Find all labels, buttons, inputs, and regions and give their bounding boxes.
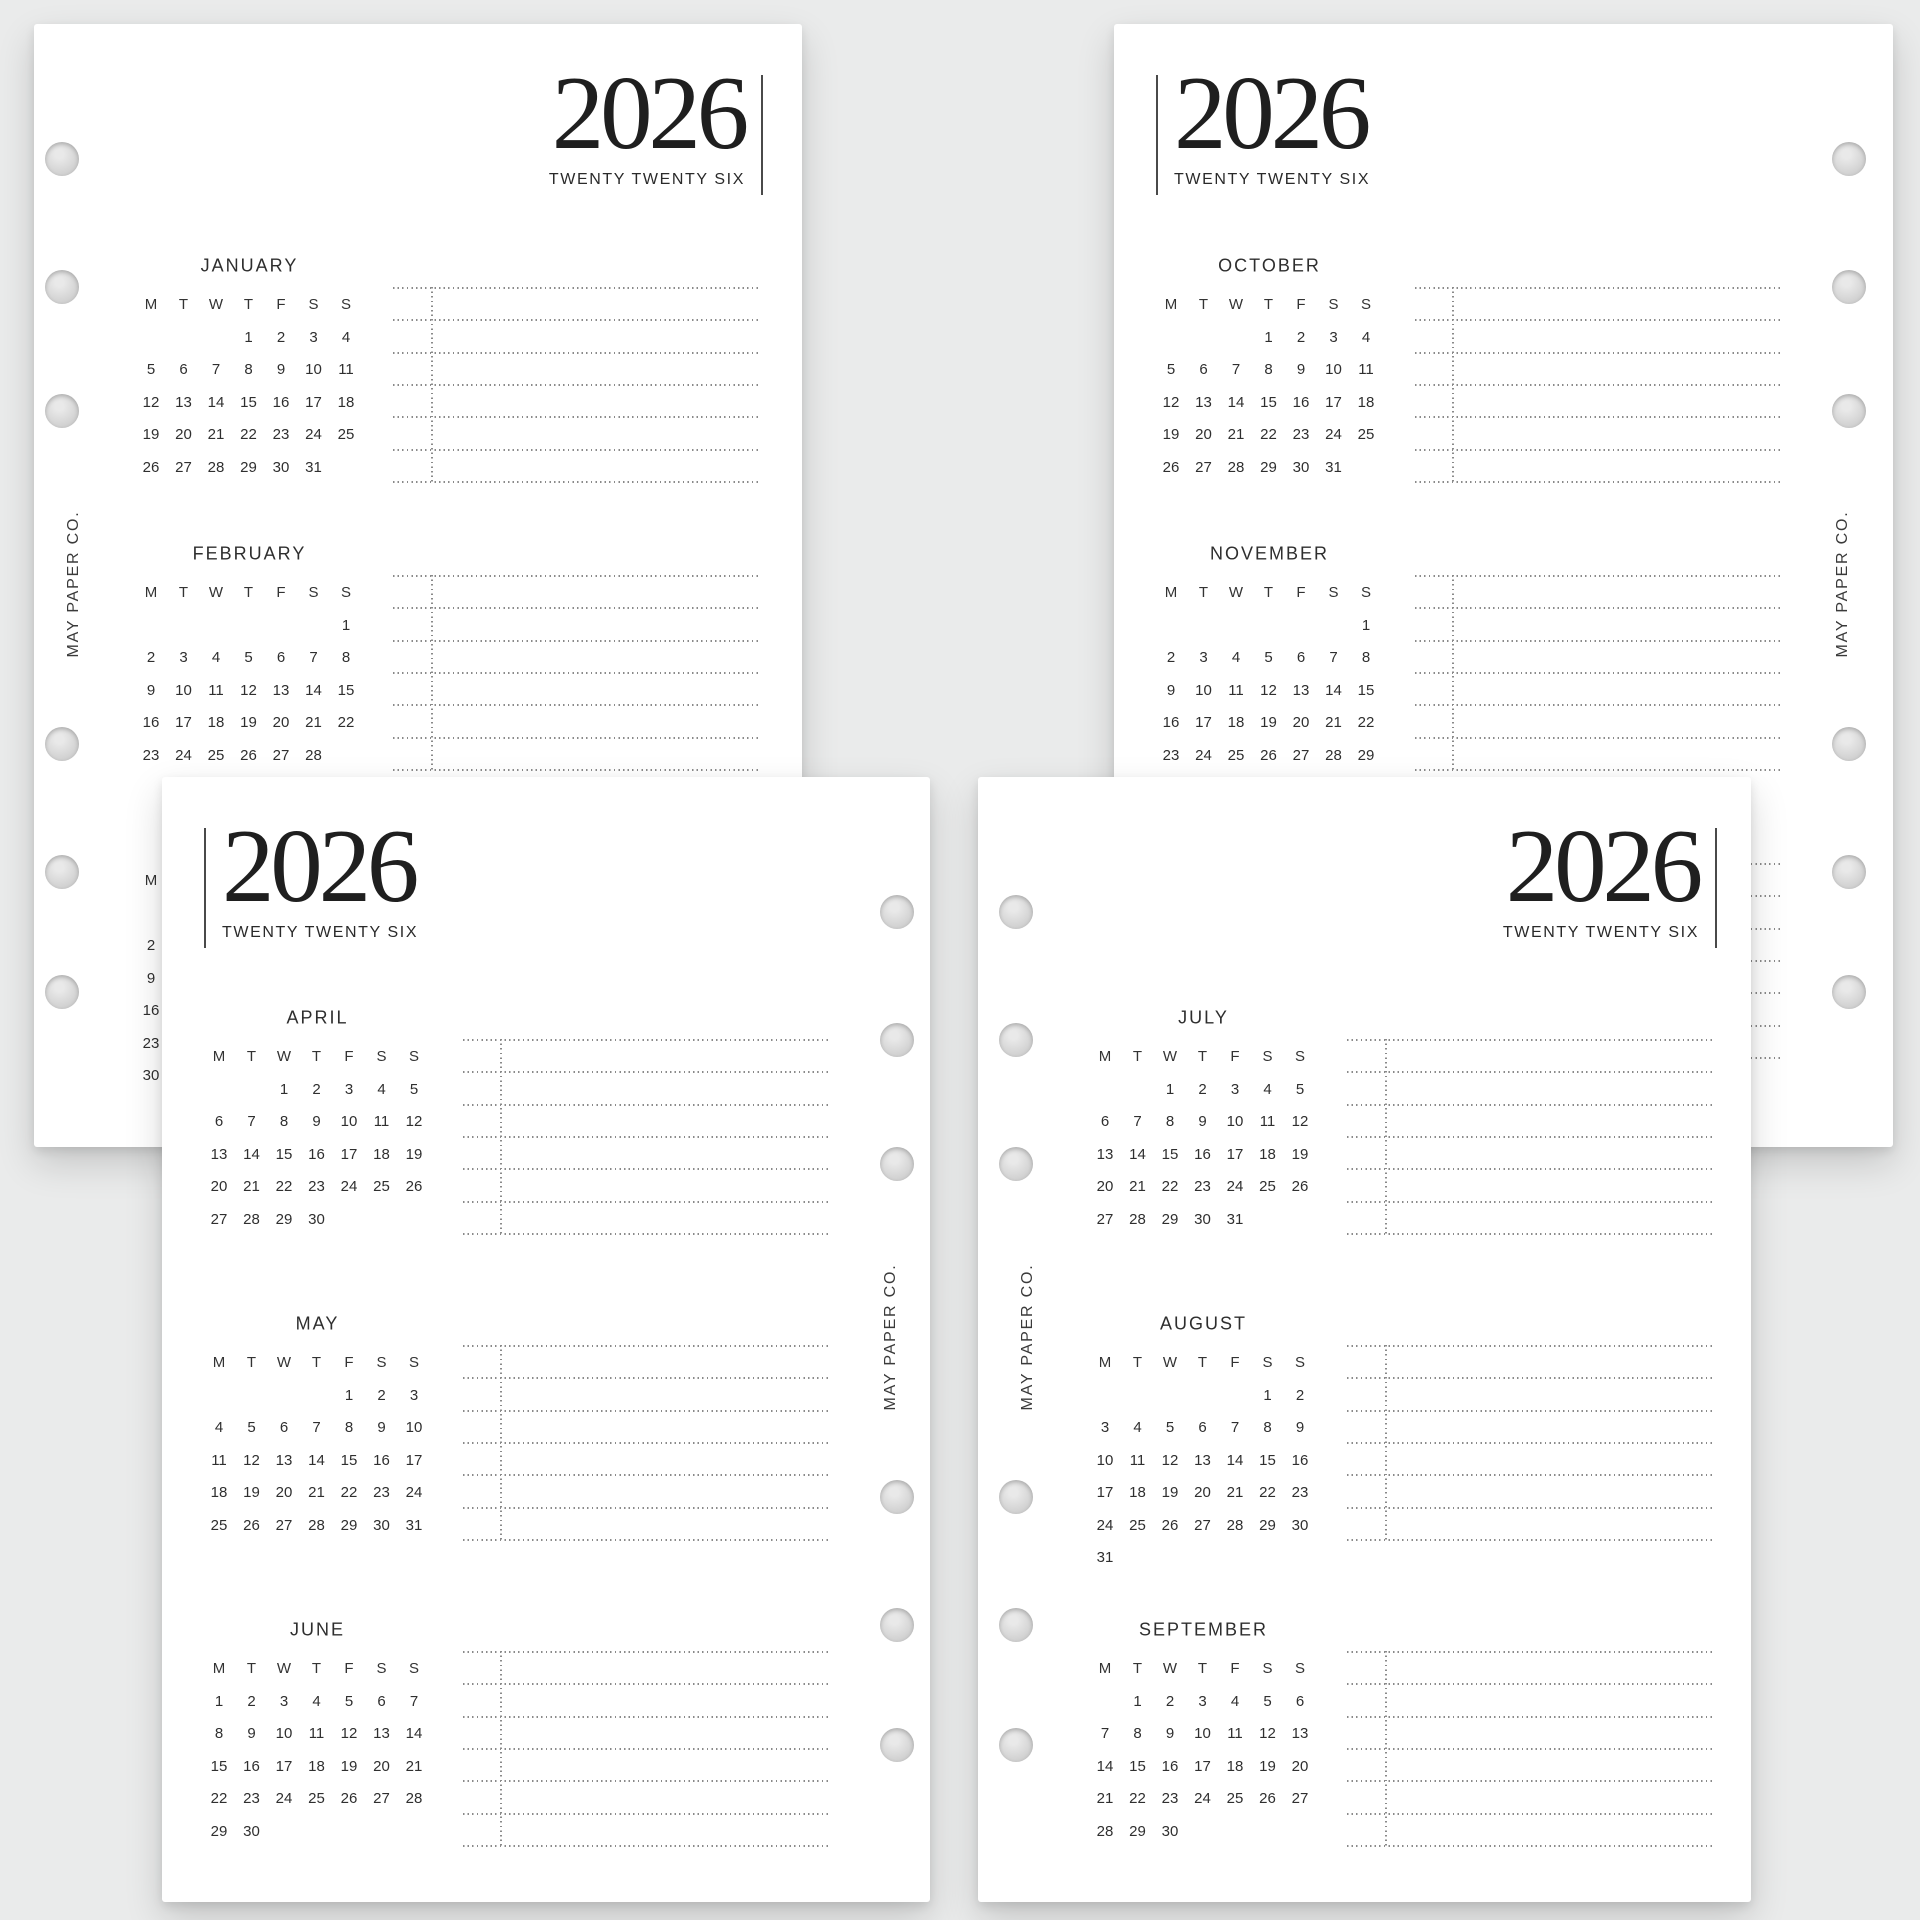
- weekday-letter: T: [235, 1046, 268, 1068]
- date-cell: [235, 1079, 268, 1101]
- weekday-letter: W: [268, 1352, 301, 1374]
- weekday-letter: S: [1284, 1046, 1317, 1068]
- notes-line: [463, 1377, 828, 1379]
- weekday-letter: W: [1154, 1046, 1187, 1068]
- date-cell: 15: [268, 1144, 301, 1166]
- binder-hole: [999, 1023, 1033, 1057]
- date-cell: 31: [1317, 457, 1350, 479]
- date-cell: 4: [330, 327, 363, 349]
- notes-line: [1347, 1201, 1714, 1203]
- weekday-letter: T: [235, 1658, 268, 1680]
- binder-hole: [1832, 975, 1866, 1009]
- date-week-row: 13141516171819: [1089, 1144, 1317, 1166]
- date-cell: 29: [1251, 1515, 1284, 1537]
- weekday-letter: T: [167, 582, 200, 604]
- date-cell: 10: [1089, 1450, 1122, 1472]
- date-cell: 1: [268, 1079, 301, 1101]
- date-cell: 24: [297, 424, 330, 446]
- date-cell: 24: [398, 1482, 431, 1504]
- date-cell: 30: [365, 1515, 398, 1537]
- year-title: 2026: [1506, 813, 1699, 918]
- date-cell: 21: [1089, 1788, 1122, 1810]
- date-cell: 29: [1121, 1821, 1154, 1843]
- date-week-row: 31: [1089, 1547, 1317, 1569]
- date-cell: 3: [398, 1385, 431, 1407]
- date-cell: 5: [398, 1079, 431, 1101]
- date-cell: 8: [1350, 647, 1383, 669]
- date-cell: 24: [333, 1176, 366, 1198]
- weekday-header: MTWTFSS: [1089, 1352, 1317, 1374]
- date-cell: [167, 327, 200, 349]
- month-label: JULY: [1176, 1008, 1229, 1029]
- binder-hole: [880, 895, 914, 929]
- date-cell: 15: [1121, 1756, 1154, 1778]
- notes-line: [1347, 1168, 1714, 1170]
- date-cell: 1: [330, 615, 363, 637]
- date-cell: 10: [1187, 680, 1220, 702]
- date-cell: 6: [268, 1417, 301, 1439]
- date-cell: 29: [203, 1821, 236, 1843]
- date-cell: 23: [235, 1788, 268, 1810]
- date-cell: 11: [330, 359, 363, 381]
- weekday-letter: T: [232, 294, 265, 316]
- date-cell: [232, 615, 265, 637]
- notes-line: [1415, 352, 1780, 354]
- date-cell: 18: [200, 712, 233, 734]
- weekday-letter: W: [268, 1658, 301, 1680]
- date-cell: [268, 1385, 301, 1407]
- date-week-row: 9101112131415: [1155, 680, 1383, 702]
- date-cell: 9: [1154, 1723, 1187, 1745]
- date-cell: 16: [235, 1756, 268, 1778]
- date-week-row: 1: [135, 615, 363, 637]
- date-week-row: 891011121314: [203, 1723, 431, 1745]
- date-cell: 3: [1219, 1079, 1252, 1101]
- date-cell: [333, 1821, 366, 1843]
- date-cell: [1187, 327, 1220, 349]
- date-cell: 23: [265, 424, 298, 446]
- notes-line: [463, 1474, 828, 1476]
- date-cell: 15: [1252, 392, 1285, 414]
- weekday-letter: S: [1251, 1046, 1284, 1068]
- date-cell: 21: [235, 1176, 268, 1198]
- date-cell: 3: [297, 327, 330, 349]
- date-cell: 2: [265, 327, 298, 349]
- notes-column-divider: [431, 287, 433, 483]
- weekday-header: MTWTFSS: [1089, 1658, 1317, 1680]
- weekday-letter: W: [1220, 294, 1253, 316]
- weekday-letter: T: [300, 1046, 333, 1068]
- date-cell: 19: [1252, 712, 1285, 734]
- date-cell: 8: [1252, 359, 1285, 381]
- date-cell: 5: [1154, 1417, 1187, 1439]
- date-cell: [235, 1385, 268, 1407]
- date-week-row: 123456: [1089, 1691, 1317, 1713]
- notes-line: [1415, 704, 1780, 706]
- year-divider-line: [761, 75, 763, 195]
- date-week-row: 27282930: [203, 1209, 431, 1231]
- date-week-row: 2728293031: [1089, 1209, 1317, 1231]
- date-cell: 11: [365, 1111, 398, 1133]
- weekday-letter: F: [333, 1658, 366, 1680]
- date-cell: 2: [1284, 1385, 1317, 1407]
- date-cell: 1: [333, 1385, 366, 1407]
- year-divider-line: [1156, 75, 1158, 195]
- date-cell: 1: [1251, 1385, 1284, 1407]
- binder-hole: [45, 142, 79, 176]
- date-cell: 15: [330, 680, 363, 702]
- date-cell: 26: [232, 745, 265, 767]
- date-cell: 21: [297, 712, 330, 734]
- date-cell: 19: [1154, 1482, 1187, 1504]
- notes-line: [463, 1539, 828, 1541]
- date-cell: [1186, 1821, 1219, 1843]
- date-cell: 7: [1317, 647, 1350, 669]
- notes-column-divider: [1385, 1651, 1387, 1847]
- date-cell: 14: [200, 392, 233, 414]
- weekday-letter: M: [1155, 294, 1188, 316]
- date-week-row: 262728293031: [135, 457, 363, 479]
- date-cell: 26: [1155, 457, 1188, 479]
- planner-mockup-canvas: 2026TWENTY TWENTY SIXMAY PAPER CO.JANUAR…: [0, 0, 1920, 1920]
- date-cell: 2: [1154, 1691, 1187, 1713]
- date-cell: [1089, 1691, 1122, 1713]
- date-cell: 6: [1285, 647, 1318, 669]
- binder-hole: [880, 1728, 914, 1762]
- date-cell: 15: [1154, 1144, 1187, 1166]
- date-cell: 29: [1154, 1209, 1187, 1231]
- date-cell: 8: [330, 647, 363, 669]
- date-week-row: 14151617181920: [1089, 1756, 1317, 1778]
- date-cell: 22: [330, 712, 363, 734]
- date-cell: 18: [203, 1482, 236, 1504]
- date-cell: 25: [1121, 1515, 1154, 1537]
- date-cell: [1317, 615, 1350, 637]
- date-cell: [1089, 1079, 1122, 1101]
- date-cell: [1154, 1547, 1187, 1569]
- date-cell: 18: [1121, 1482, 1154, 1504]
- weekday-letter: F: [1219, 1352, 1252, 1374]
- date-cell: 21: [398, 1756, 431, 1778]
- date-cell: 24: [1317, 424, 1350, 446]
- weekday-letter: M: [1089, 1658, 1122, 1680]
- weekday-letter: S: [330, 294, 363, 316]
- date-week-row: 282930: [1089, 1821, 1317, 1843]
- date-cell: 24: [1089, 1515, 1122, 1537]
- weekday-letter: W: [1154, 1352, 1187, 1374]
- date-week-row: 3456789: [1089, 1417, 1317, 1439]
- date-week-row: 2345678: [135, 647, 363, 669]
- date-cell: 16: [135, 712, 168, 734]
- date-week-row: 567891011: [135, 359, 363, 381]
- date-cell: 21: [1317, 712, 1350, 734]
- date-cell: 7: [398, 1691, 431, 1713]
- notes-column-divider: [1452, 575, 1454, 771]
- date-cell: 3: [268, 1691, 301, 1713]
- date-cell: [1284, 1547, 1317, 1569]
- date-cell: 9: [365, 1417, 398, 1439]
- date-week-row: 123: [203, 1385, 431, 1407]
- date-cell: 22: [333, 1482, 366, 1504]
- date-cell: [1219, 1385, 1252, 1407]
- date-cell: 25: [1220, 745, 1253, 767]
- weekday-header: MTWTFSS: [1089, 1046, 1317, 1068]
- date-cell: 28: [1219, 1515, 1252, 1537]
- weekday-letter: M: [135, 294, 168, 316]
- date-cell: 13: [1284, 1723, 1317, 1745]
- date-cell: 16: [1154, 1756, 1187, 1778]
- date-week-row: 567891011: [1155, 359, 1383, 381]
- weekday-letter: S: [1350, 582, 1383, 604]
- date-cell: 23: [135, 745, 168, 767]
- date-week-row: 6789101112: [203, 1111, 431, 1133]
- page-bottom-right: 2026TWENTY TWENTY SIXMAY PAPER CO.JULYMT…: [978, 777, 1751, 1902]
- date-week-row: 9101112131415: [135, 680, 363, 702]
- date-cell: 18: [1219, 1756, 1252, 1778]
- date-cell: 31: [1219, 1209, 1252, 1231]
- weekday-letter: M: [135, 582, 168, 604]
- date-cell: 24: [1219, 1176, 1252, 1198]
- date-week-row: 232425262728: [135, 745, 363, 767]
- date-cell: [1187, 615, 1220, 637]
- notes-line: [463, 1039, 828, 1041]
- notes-line: [463, 1442, 828, 1444]
- binder-hole: [999, 1480, 1033, 1514]
- notes-line: [1347, 1345, 1714, 1347]
- date-cell: 14: [1121, 1144, 1154, 1166]
- date-cell: [1186, 1385, 1219, 1407]
- date-cell: 26: [1284, 1176, 1317, 1198]
- notes-line: [463, 1780, 828, 1782]
- date-cell: 4: [1219, 1691, 1252, 1713]
- date-cell: 21: [300, 1482, 333, 1504]
- date-week-row: 2930: [203, 1821, 431, 1843]
- date-cell: 25: [1251, 1176, 1284, 1198]
- date-cell: 26: [1252, 745, 1285, 767]
- notes-line: [1347, 1071, 1714, 1073]
- date-cell: 20: [1187, 424, 1220, 446]
- binder-hole: [999, 1728, 1033, 1762]
- notes-line: [1415, 287, 1780, 289]
- notes-column-divider: [1452, 287, 1454, 483]
- date-week-row: 19202122232425: [1155, 424, 1383, 446]
- notes-line: [463, 1716, 828, 1718]
- weekday-letter: W: [1154, 1658, 1187, 1680]
- date-cell: 10: [1186, 1723, 1219, 1745]
- weekday-letter: F: [265, 582, 298, 604]
- date-cell: 10: [333, 1111, 366, 1133]
- notes-line: [463, 1813, 828, 1815]
- date-cell: 27: [268, 1515, 301, 1537]
- date-cell: 13: [265, 680, 298, 702]
- date-cell: 24: [167, 745, 200, 767]
- weekday-letter: T: [1187, 582, 1220, 604]
- weekday-letter: T: [232, 582, 265, 604]
- date-cell: 28: [297, 745, 330, 767]
- date-cell: 18: [1251, 1144, 1284, 1166]
- date-cell: 5: [1251, 1691, 1284, 1713]
- notes-line: [393, 607, 760, 609]
- date-cell: 17: [167, 712, 200, 734]
- date-cell: 8: [333, 1417, 366, 1439]
- date-cell: 4: [203, 1417, 236, 1439]
- date-cell: 7: [300, 1417, 333, 1439]
- weekday-letter: M: [1155, 582, 1188, 604]
- date-cell: 11: [1251, 1111, 1284, 1133]
- date-cell: 25: [300, 1788, 333, 1810]
- notes-line: [1415, 575, 1780, 577]
- date-cell: 12: [232, 680, 265, 702]
- binder-hole: [999, 895, 1033, 929]
- weekday-letter: W: [200, 582, 233, 604]
- weekday-letter: S: [365, 1046, 398, 1068]
- date-cell: 11: [1220, 680, 1253, 702]
- year-subtitle: TWENTY TWENTY SIX: [222, 925, 418, 941]
- notes-line: [393, 640, 760, 642]
- date-cell: 13: [1186, 1450, 1219, 1472]
- date-week-row: 12: [1089, 1385, 1317, 1407]
- date-week-row: 20212223242526: [1089, 1176, 1317, 1198]
- notes-line: [1347, 1410, 1714, 1412]
- date-cell: 9: [235, 1723, 268, 1745]
- date-cell: 27: [1186, 1515, 1219, 1537]
- date-cell: 17: [1219, 1144, 1252, 1166]
- date-cell: 23: [1155, 745, 1188, 767]
- date-cell: 3: [333, 1079, 366, 1101]
- notes-line: [393, 416, 760, 418]
- date-cell: 20: [268, 1482, 301, 1504]
- date-cell: 17: [268, 1756, 301, 1778]
- date-cell: 21: [200, 424, 233, 446]
- year-title: 2026: [1174, 60, 1367, 165]
- date-cell: 8: [1154, 1111, 1187, 1133]
- date-cell: 5: [1252, 647, 1285, 669]
- binder-hole: [45, 727, 79, 761]
- notes-line: [1347, 1039, 1714, 1041]
- date-cell: 8: [203, 1723, 236, 1745]
- date-cell: 1: [1252, 327, 1285, 349]
- date-week-row: 24252627282930: [1089, 1515, 1317, 1537]
- date-cell: 18: [300, 1756, 333, 1778]
- date-cell: 3: [1186, 1691, 1219, 1713]
- date-week-row: 2345678: [1155, 647, 1383, 669]
- weekday-letter: S: [1251, 1352, 1284, 1374]
- date-cell: [203, 1385, 236, 1407]
- date-cell: 9: [1284, 1417, 1317, 1439]
- date-cell: 20: [1285, 712, 1318, 734]
- date-cell: 12: [333, 1723, 366, 1745]
- weekday-letter: T: [1121, 1658, 1154, 1680]
- binder-hole: [45, 270, 79, 304]
- weekday-letter: F: [333, 1352, 366, 1374]
- date-cell: 14: [1220, 392, 1253, 414]
- notes-column-divider: [1385, 1345, 1387, 1541]
- notes-line: [463, 1651, 828, 1653]
- date-cell: 9: [1186, 1111, 1219, 1133]
- date-cell: 22: [232, 424, 265, 446]
- notes-line: [463, 1845, 828, 1847]
- date-cell: 1: [1121, 1691, 1154, 1713]
- date-week-row: 78910111213: [1089, 1723, 1317, 1745]
- date-cell: 6: [265, 647, 298, 669]
- year-subtitle: TWENTY TWENTY SIX: [1503, 925, 1699, 941]
- date-cell: 7: [235, 1111, 268, 1133]
- date-cell: [1284, 1209, 1317, 1231]
- date-cell: 22: [1350, 712, 1383, 734]
- date-cell: 9: [135, 680, 168, 702]
- date-week-row: 18192021222324: [203, 1482, 431, 1504]
- date-cell: 25: [365, 1176, 398, 1198]
- date-cell: 20: [203, 1176, 236, 1198]
- date-cell: 1: [232, 327, 265, 349]
- date-cell: [200, 327, 233, 349]
- binder-hole: [1832, 727, 1866, 761]
- date-cell: 13: [268, 1450, 301, 1472]
- notes-line: [463, 1507, 828, 1509]
- date-cell: 22: [1154, 1176, 1187, 1198]
- date-cell: 28: [1317, 745, 1350, 767]
- month-label: MAY: [294, 1314, 340, 1335]
- date-cell: [135, 615, 168, 637]
- date-cell: 24: [1186, 1788, 1219, 1810]
- date-week-row: 17181920212223: [1089, 1482, 1317, 1504]
- weekday-letter: F: [333, 1046, 366, 1068]
- date-cell: 18: [330, 392, 363, 414]
- date-cell: 1: [1350, 615, 1383, 637]
- weekday-letter: S: [297, 582, 330, 604]
- weekday-letter: S: [1317, 294, 1350, 316]
- date-cell: 20: [1186, 1482, 1219, 1504]
- date-week-row: 23242526272829: [1155, 745, 1383, 767]
- date-cell: 12: [1251, 1723, 1284, 1745]
- date-cell: 6: [1089, 1111, 1122, 1133]
- date-cell: 13: [1285, 680, 1318, 702]
- date-cell: [365, 1209, 398, 1231]
- notes-line: [393, 575, 760, 577]
- notes-column-divider: [500, 1039, 502, 1235]
- date-cell: 14: [398, 1723, 431, 1745]
- date-cell: 25: [330, 424, 363, 446]
- date-cell: 8: [268, 1111, 301, 1133]
- date-cell: [398, 1821, 431, 1843]
- notes-line: [1347, 1507, 1714, 1509]
- notes-column-divider: [1385, 1039, 1387, 1235]
- date-cell: 10: [167, 680, 200, 702]
- date-week-row: 12131415161718: [135, 392, 363, 414]
- weekday-letter: T: [235, 1352, 268, 1374]
- notes-line: [463, 1071, 828, 1073]
- weekday-letter: S: [1251, 1658, 1284, 1680]
- date-cell: 5: [333, 1691, 366, 1713]
- date-cell: [1350, 457, 1383, 479]
- date-cell: 4: [1220, 647, 1253, 669]
- date-cell: [135, 327, 168, 349]
- binder-hole: [45, 394, 79, 428]
- date-cell: 19: [1251, 1756, 1284, 1778]
- binder-hole: [880, 1480, 914, 1514]
- date-cell: 16: [1186, 1144, 1219, 1166]
- date-cell: [1252, 615, 1285, 637]
- notes-line: [1347, 1651, 1714, 1653]
- binder-hole: [45, 975, 79, 1009]
- month-label: JUNE: [288, 1620, 345, 1641]
- date-cell: [203, 1079, 236, 1101]
- date-cell: 22: [1252, 424, 1285, 446]
- date-week-row: 1234: [135, 327, 363, 349]
- date-cell: 2: [300, 1079, 333, 1101]
- weekday-letter: S: [365, 1658, 398, 1680]
- date-cell: 4: [1121, 1417, 1154, 1439]
